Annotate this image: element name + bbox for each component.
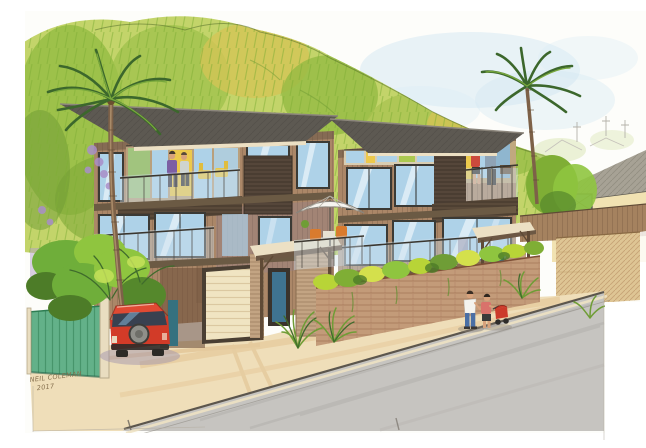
car-wheel bbox=[116, 350, 128, 357]
architectural-rendering: NEIL COLEMAN 2017 bbox=[0, 0, 646, 448]
artwork-canvas: NEIL COLEMAN 2017 bbox=[0, 0, 646, 448]
balcony-person-purple bbox=[167, 160, 177, 174]
right-window-l3a bbox=[346, 167, 392, 210]
paper-margin-left bbox=[0, 0, 25, 448]
car-wheel bbox=[152, 349, 164, 356]
entry-door-centre bbox=[272, 272, 286, 322]
fence-post bbox=[100, 298, 109, 378]
left-window-l3c bbox=[296, 141, 330, 189]
potted-plant bbox=[301, 220, 309, 228]
tail-light bbox=[112, 336, 117, 343]
paper-margin-top bbox=[0, 0, 646, 11]
right-window-l3b bbox=[394, 164, 438, 207]
tail-light bbox=[162, 333, 167, 340]
paper-margin-bottom bbox=[0, 433, 646, 448]
paper-margin-right bbox=[605, 302, 646, 433]
